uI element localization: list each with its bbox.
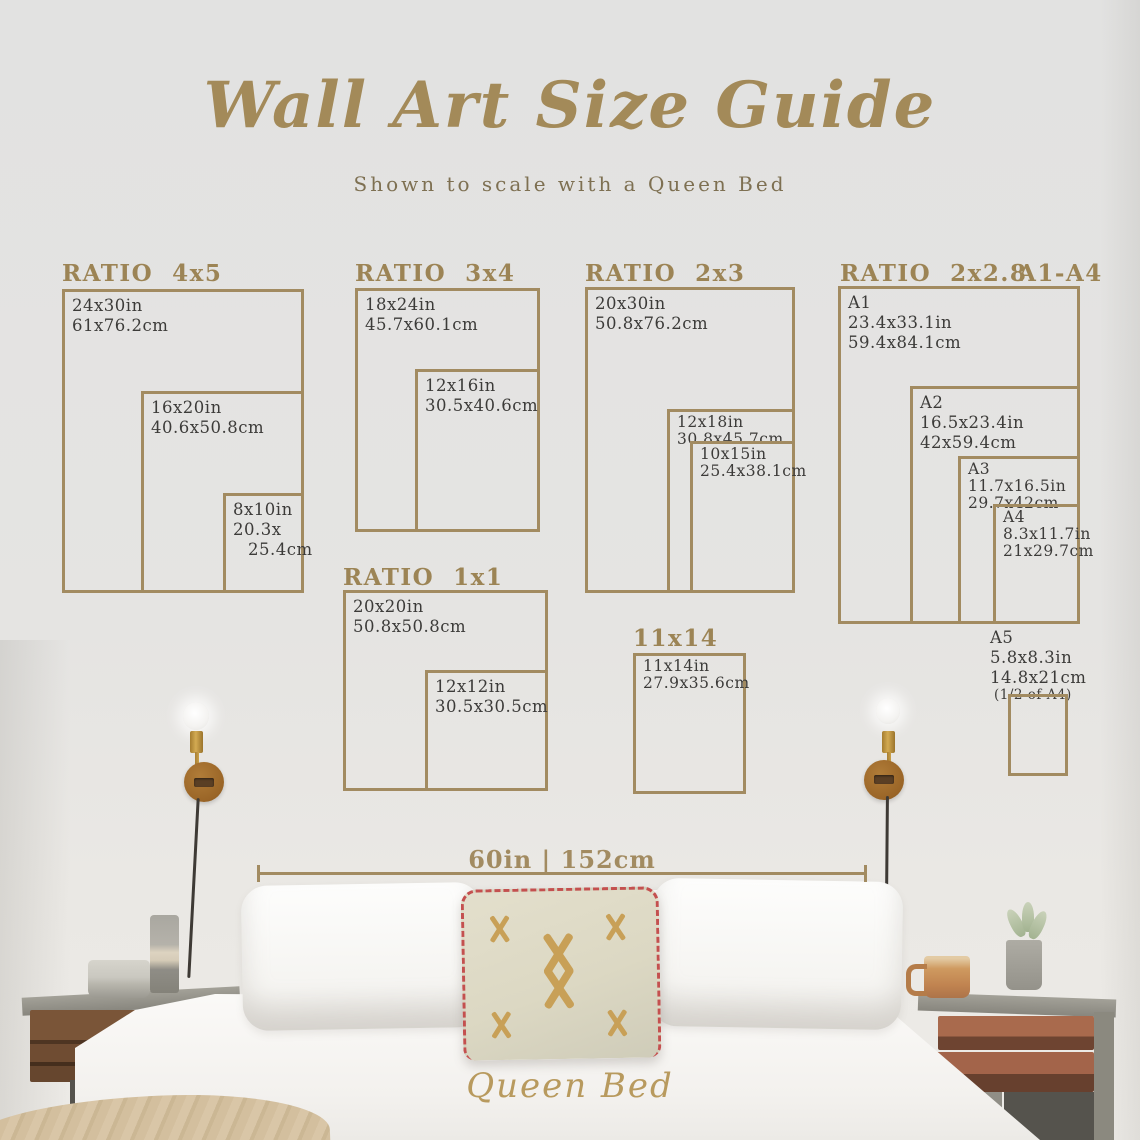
- size-name: A2: [920, 393, 1074, 413]
- mug-handle: [906, 964, 927, 996]
- size-name: A1: [848, 293, 1074, 313]
- group-header-2x2-8: RATIO 2x2.8: [840, 260, 1027, 287]
- ceramic-vase: [150, 915, 179, 993]
- embroidery-motif-center: [538, 964, 579, 1011]
- bed-width-label: 60in | 152cm: [257, 845, 867, 874]
- group-header-11x14: 11x14: [633, 625, 718, 652]
- embroidery-motif: [488, 1010, 515, 1040]
- size-box-8x10in: 8x10in 20.3x 25.4cm: [223, 493, 304, 593]
- size-label-a5: A5 5.8x8.3in 14.8x21cm (1/2 of A4): [990, 628, 1086, 704]
- group-header-4x5: RATIO 4x5: [62, 260, 222, 287]
- size-box-a4: A4 8.3x11.7in 21x29.7cm: [993, 504, 1080, 624]
- bed-width-measure-line: [257, 872, 867, 875]
- size-inches: 20x20in: [353, 597, 542, 617]
- size-cm: 20.3x: [233, 520, 298, 540]
- size-inches: 11.7x16.5in: [968, 478, 1074, 495]
- group-header-3x4: RATIO 3x4: [355, 260, 515, 287]
- size-inches: 5.8x8.3in: [990, 648, 1086, 668]
- sconce-bracket-right: [874, 775, 894, 784]
- size-inches: 16x20in: [151, 398, 298, 418]
- embroidery-motif: [486, 914, 513, 944]
- size-box-a5: [1008, 694, 1068, 776]
- size-inches: 16.5x23.4in: [920, 413, 1074, 433]
- size-name: A3: [968, 461, 1074, 478]
- wall-shadow-right: [1100, 0, 1140, 1140]
- plant-pot: [1006, 940, 1042, 990]
- size-box-11x14in: 11x14in 27.9x35.6cm: [633, 653, 746, 794]
- wall-art-size-guide: Wall Art Size Guide Shown to scale with …: [0, 0, 1140, 1140]
- sconce-bracket-left: [194, 778, 214, 787]
- size-cm: 21x29.7cm: [1003, 543, 1074, 560]
- sconce-socket-right: [882, 731, 895, 753]
- size-box-10x15in: 10x15in 25.4x38.1cm: [690, 441, 795, 593]
- size-inches: 12x12in: [435, 677, 542, 697]
- size-cm: 30.5x30.5cm: [435, 697, 542, 717]
- measure-tick-right: [864, 865, 867, 882]
- group-header-2x3: RATIO 2x3: [585, 260, 745, 287]
- size-name: A5: [990, 628, 1086, 648]
- size-cm: 50.8x76.2cm: [595, 314, 789, 334]
- ceramic-bowl: [88, 960, 150, 998]
- size-inches: 12x16in: [425, 376, 534, 396]
- size-inches: 11x14in: [643, 658, 740, 675]
- size-inches: 10x15in: [700, 446, 789, 463]
- size-inches: 20x30in: [595, 294, 789, 314]
- size-cm: 59.4x84.1cm: [848, 333, 1074, 353]
- light-bulb-left: [183, 702, 209, 730]
- size-cm: 61x76.2cm: [72, 316, 298, 336]
- page-subtitle: Shown to scale with a Queen Bed: [0, 172, 1140, 196]
- size-cm: 27.9x35.6cm: [643, 675, 740, 692]
- size-inches: 8.3x11.7in: [1003, 526, 1074, 543]
- size-cm: 14.8x21cm: [990, 668, 1086, 688]
- group-header-a1-a4: A1-A4: [1018, 260, 1103, 287]
- size-name: A4: [1003, 509, 1074, 526]
- size-cm: 45.7x60.1cm: [365, 315, 534, 335]
- measure-tick-left: [257, 865, 260, 882]
- size-box-12x16in: 12x16in 30.5x40.6cm: [415, 369, 540, 532]
- group-header-1x1: RATIO 1x1: [343, 564, 503, 591]
- nightstand-right-drawer-top: [938, 1016, 1094, 1050]
- page-title: Wall Art Size Guide: [0, 66, 1140, 146]
- size-cm: 50.8x50.8cm: [353, 617, 542, 637]
- size-inches: 18x24in: [365, 295, 534, 315]
- size-inches: 23.4x33.1in: [848, 313, 1074, 333]
- size-inches: 8x10in: [233, 500, 298, 520]
- sconce-socket-left: [190, 731, 203, 753]
- size-inches: 24x30in: [72, 296, 298, 316]
- size-cm: 42x59.4cm: [920, 433, 1074, 453]
- coffee-mug: [924, 956, 970, 998]
- light-bulb-right: [876, 698, 900, 724]
- size-cm: 30.5x40.6cm: [425, 396, 534, 416]
- embroidery-motif: [602, 912, 629, 942]
- size-cm: 25.4cm: [233, 540, 298, 560]
- size-cm: 40.6x50.8cm: [151, 418, 298, 438]
- size-box-12x12in: 12x12in 30.5x30.5cm: [425, 670, 548, 791]
- queen-bed-label: Queen Bed: [0, 1066, 1140, 1106]
- accent-pillow: [461, 886, 662, 1060]
- size-inches: 12x18in: [677, 414, 789, 431]
- pillow-right: [651, 878, 904, 1030]
- pillow-left: [241, 882, 483, 1031]
- size-cm: 25.4x38.1cm: [700, 463, 789, 480]
- embroidery-motif: [604, 1008, 631, 1038]
